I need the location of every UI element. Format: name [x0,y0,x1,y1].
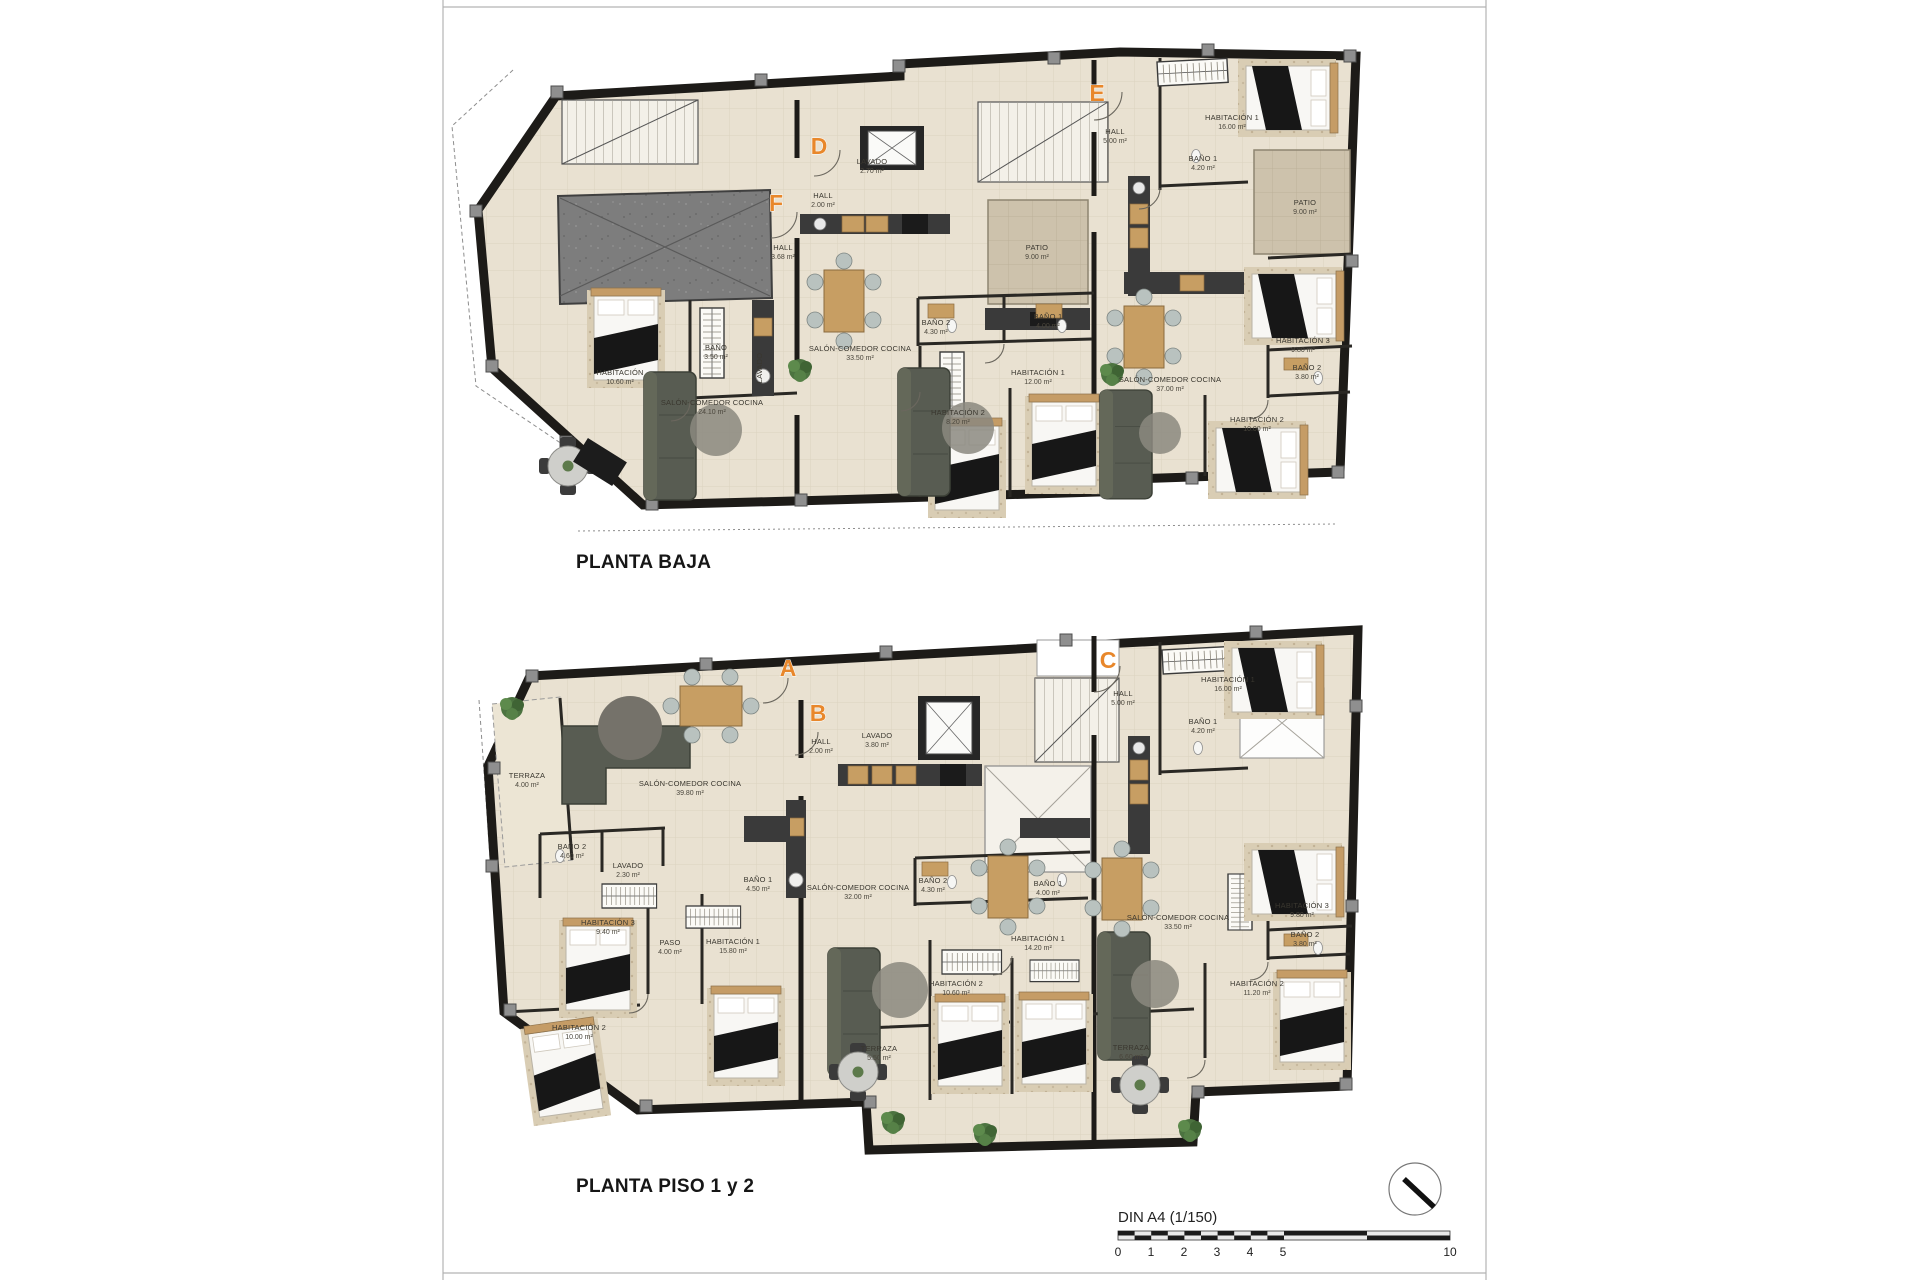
plan-title: PLANTA PISO 1 y 2 [576,1176,754,1197]
svg-text:9.00 m²: 9.00 m² [1025,254,1049,261]
architectural-drawing: HALL3.68 m² BAÑO3.50 m² LAVADO HABITACIÓ… [0,0,1920,1280]
scale-tick: 0 [1115,1245,1122,1259]
unit-marker-a: A [780,655,797,681]
svg-text:HABITACIÓN 1: HABITACIÓN 1 [1201,675,1255,684]
closet [686,906,741,928]
rug [1131,960,1179,1008]
svg-text:4.20 m²: 4.20 m² [1191,728,1215,735]
scale-tick: 10 [1443,1245,1457,1259]
closet [1157,58,1228,86]
sofa [644,372,696,500]
bed [707,986,785,1086]
svg-text:9.40 m²: 9.40 m² [596,929,620,936]
svg-text:HABITACIÓN 3: HABITACIÓN 3 [1276,336,1330,345]
bed [1273,970,1351,1070]
svg-text:BAÑO 2: BAÑO 2 [922,318,951,327]
svg-text:TERRAZA: TERRAZA [509,771,545,780]
rug [598,696,662,760]
scale-tick: 2 [1181,1245,1188,1259]
closet [1162,646,1233,674]
svg-text:BAÑO 1: BAÑO 1 [1189,154,1218,163]
scale-tick: 1 [1148,1245,1155,1259]
svg-text:HALL: HALL [813,191,833,200]
svg-text:BAÑO: BAÑO [705,343,727,352]
garage-ramp [558,190,772,304]
svg-text:SALÓN-COMEDOR COCINA: SALÓN-COMEDOR COCINA [1119,375,1221,384]
bed [1025,394,1103,494]
svg-text:9.80 m²: 9.80 m² [1291,347,1315,354]
bed [520,1016,611,1126]
svg-text:5.00 m²: 5.00 m² [1103,138,1127,145]
svg-text:BAÑO 2: BAÑO 2 [1291,930,1320,939]
rug [872,962,928,1018]
svg-text:HABITACIÓN 2: HABITACIÓN 2 [1230,979,1284,988]
svg-text:PATIO: PATIO [1294,198,1316,207]
svg-text:2.00 m²: 2.00 m² [811,202,835,209]
svg-text:4.50 m²: 4.50 m² [746,886,770,893]
patio [988,200,1088,304]
svg-text:HABITACIÓN 2: HABITACIÓN 2 [931,408,985,417]
svg-text:HABITACIÓN 2: HABITACIÓN 2 [929,979,983,988]
svg-text:32.00 m²: 32.00 m² [844,894,872,901]
svg-text:16.00 m²: 16.00 m² [1214,686,1242,693]
scale-tick: 4 [1247,1245,1254,1259]
svg-text:33.50 m²: 33.50 m² [846,355,874,362]
svg-text:37.00 m²: 37.00 m² [1156,386,1184,393]
svg-text:HABITACIÓN 1: HABITACIÓN 1 [1011,934,1065,943]
plan-title: PLANTA BAJA [576,552,711,573]
svg-text:PATIO: PATIO [1026,243,1048,252]
svg-text:BAÑO 1: BAÑO 1 [1189,717,1218,726]
svg-text:9.00 m²: 9.00 m² [1293,209,1317,216]
svg-text:BAÑO 1: BAÑO 1 [1034,879,1063,888]
svg-text:HABITACIÓN 3: HABITACIÓN 3 [581,918,635,927]
bed [1015,992,1093,1092]
svg-text:24.10 m²: 24.10 m² [698,409,726,416]
scale-tick: 5 [1280,1245,1287,1259]
svg-text:4.60 m²: 4.60 m² [560,853,584,860]
svg-text:5.50 m²: 5.50 m² [867,1055,891,1062]
svg-text:4.20 m²: 4.20 m² [1191,165,1215,172]
stairs [562,100,698,164]
svg-text:4.00 m²: 4.00 m² [1036,323,1060,330]
north-arrow-icon [1389,1163,1441,1215]
unit-marker-b: B [810,700,827,726]
bed [1238,59,1338,137]
scale-label: DIN A4 (1/150) [1118,1209,1217,1226]
stairs [978,102,1108,182]
svg-text:2.70 m²: 2.70 m² [860,168,884,175]
svg-text:3.80 m²: 3.80 m² [865,742,889,749]
svg-text:4.00 m²: 4.00 m² [1036,890,1060,897]
sofa [898,368,950,496]
svg-text:HABITACIÓN 3: HABITACIÓN 3 [1275,901,1329,910]
svg-text:HABITACIÓN 1: HABITACIÓN 1 [706,937,760,946]
svg-text:39.80 m²: 39.80 m² [676,790,704,797]
svg-text:LAVADO: LAVADO [862,731,893,740]
svg-text:SALÓN-COMEDOR COCINA: SALÓN-COMEDOR COCINA [807,883,909,892]
svg-text:PASO: PASO [659,938,680,947]
svg-text:33.50 m²: 33.50 m² [1164,924,1192,931]
closet [1030,960,1079,982]
rug [1139,412,1181,454]
svg-text:LAVADO: LAVADO [613,861,644,870]
svg-text:HALL: HALL [1113,689,1133,698]
svg-text:14.20 m²: 14.20 m² [1024,945,1052,952]
svg-text:BAÑO 2: BAÑO 2 [919,876,948,885]
svg-text:BAÑO 2: BAÑO 2 [1293,363,1322,372]
scale-tick: 3 [1214,1245,1221,1259]
svg-text:HALL: HALL [773,243,793,252]
svg-text:4.00 m²: 4.00 m² [515,782,539,789]
plan-planta-piso-1-2: TERRAZA4.00 m² SALÓN-COMEDOR COCINA39.80… [479,626,1362,1150]
svg-text:SALÓN-COMEDOR COCINA: SALÓN-COMEDOR COCINA [639,779,741,788]
svg-text:3.68 m²: 3.68 m² [771,254,795,261]
svg-text:HABITACIÓN 1: HABITACIÓN 1 [1205,113,1259,122]
unit-marker-d: D [811,133,828,159]
svg-text:HALL: HALL [811,737,831,746]
unit-marker-f: F [769,190,783,216]
stairs [1035,678,1119,762]
svg-text:8.20 m²: 8.20 m² [946,419,970,426]
elevator [918,696,980,760]
svg-text:15.80 m²: 15.80 m² [719,948,747,955]
north-indicator [1389,1163,1441,1215]
closet [602,884,657,908]
svg-text:BAÑO 1: BAÑO 1 [744,875,773,884]
svg-text:SALÓN-COMEDOR COCINA: SALÓN-COMEDOR COCINA [1127,913,1229,922]
svg-text:2.30 m²: 2.30 m² [616,872,640,879]
svg-text:TERRAZA: TERRAZA [861,1044,897,1053]
svg-text:5.00 m²: 5.00 m² [1111,700,1135,707]
room-label: LAVADO [755,353,764,384]
svg-text:3.80 m²: 3.80 m² [1295,374,1319,381]
svg-text:BAÑO 1: BAÑO 1 [1034,312,1063,321]
svg-text:2.00 m²: 2.00 m² [809,748,833,755]
unit-marker-c: C [1100,647,1117,673]
svg-text:4.30 m²: 4.30 m² [921,887,945,894]
svg-text:4.00 m²: 4.00 m² [658,949,682,956]
svg-text:BAÑO 2: BAÑO 2 [558,842,587,851]
bed [931,994,1009,1094]
unit-marker-e: E [1089,80,1104,106]
plan-planta-baja: HALL3.68 m² BAÑO3.50 m² LAVADO HABITACIÓ… [452,44,1358,531]
svg-text:10.60 m²: 10.60 m² [942,990,970,997]
svg-text:TERRAZA: TERRAZA [1113,1043,1149,1052]
svg-text:LAVADO: LAVADO [857,157,888,166]
svg-text:9.80 m²: 9.80 m² [1290,912,1314,919]
bed [1244,267,1344,345]
svg-text:HALL: HALL [1105,127,1125,136]
svg-text:3.80 m²: 3.80 m² [1293,941,1317,948]
svg-text:11.20 m²: 11.20 m² [1243,990,1271,997]
svg-text:SALÓN-COMEDOR COCINA: SALÓN-COMEDOR COCINA [661,398,763,407]
svg-text:6.60 m²: 6.60 m² [1119,1054,1143,1061]
svg-text:HABITACIÓN 2: HABITACIÓN 2 [552,1023,606,1032]
svg-text:4.30 m²: 4.30 m² [924,329,948,336]
svg-text:HABITACIÓN 1: HABITACIÓN 1 [1011,368,1065,377]
svg-text:10.00 m²: 10.00 m² [565,1034,593,1041]
svg-text:16.00 m²: 16.00 m² [1218,124,1246,131]
svg-text:10.00 m²: 10.00 m² [1243,426,1271,433]
svg-text:10.60 m²: 10.60 m² [606,379,634,386]
floor-plan-sheet: HALL3.68 m² BAÑO3.50 m² LAVADO HABITACIÓ… [0,0,1920,1280]
svg-text:SALÓN-COMEDOR COCINA: SALÓN-COMEDOR COCINA [809,344,911,353]
svg-text:HABITACIÓN 2: HABITACIÓN 2 [1230,415,1284,424]
svg-text:HABITACIÓN: HABITACIÓN [596,368,643,377]
svg-text:12.00 m²: 12.00 m² [1024,379,1052,386]
svg-text:3.50 m²: 3.50 m² [704,354,728,361]
svg-text:LAVADO: LAVADO [755,353,764,384]
closet [942,950,1002,974]
